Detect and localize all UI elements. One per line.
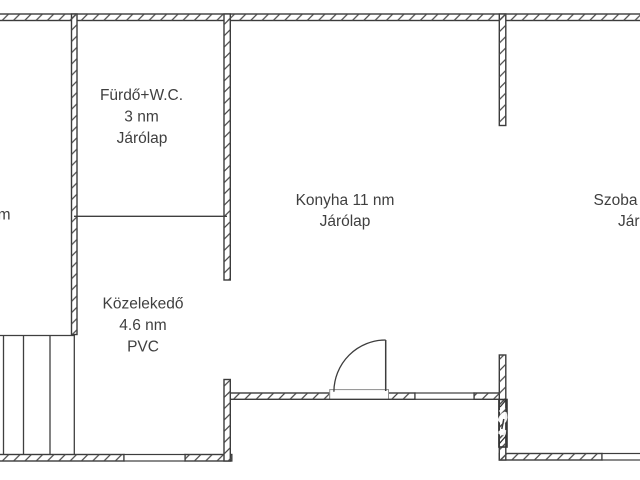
svg-text:Szoba 17 nm: Szoba 17 nm [594,192,640,209]
svg-text:Fürdő+W.C.: Fürdő+W.C. [100,87,183,104]
svg-text:Járólap: Járólap [117,130,168,147]
svg-text:m: m [0,207,11,224]
svg-text:PVC: PVC [127,339,159,356]
svg-text:3 nm: 3 nm [124,109,158,126]
svg-text:Konyha 11 nm: Konyha 11 nm [296,192,395,209]
svg-text:Járólap: Járólap [618,213,640,230]
svg-text:Közelekedő: Közelekedő [102,296,183,313]
svg-text:Járólap: Járólap [320,213,371,230]
svg-text:4.6 nm: 4.6 nm [119,317,166,334]
